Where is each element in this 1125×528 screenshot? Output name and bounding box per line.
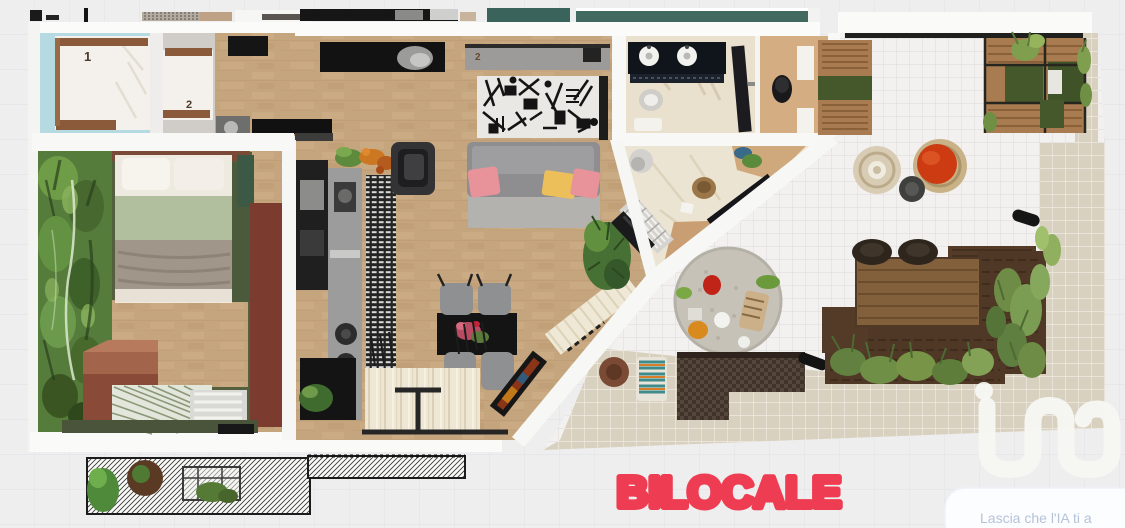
- svg-text:1: 1: [84, 49, 91, 64]
- svg-text:Lascia che l'IA ti a: Lascia che l'IA ti a: [980, 510, 1092, 526]
- svg-text:BILOCALE: BILOCALE: [617, 468, 842, 517]
- svg-text:2: 2: [186, 99, 192, 111]
- svg-text:2: 2: [475, 52, 481, 63]
